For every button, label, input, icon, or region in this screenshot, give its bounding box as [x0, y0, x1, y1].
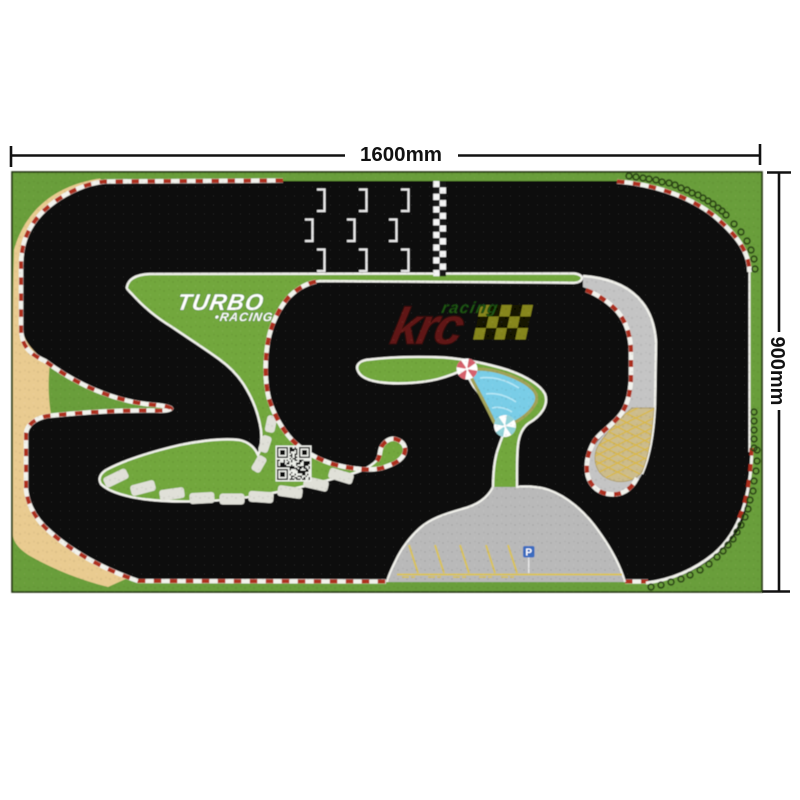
svg-text:1600mm: 1600mm [360, 143, 442, 166]
svg-text:900mm: 900mm [766, 337, 788, 406]
